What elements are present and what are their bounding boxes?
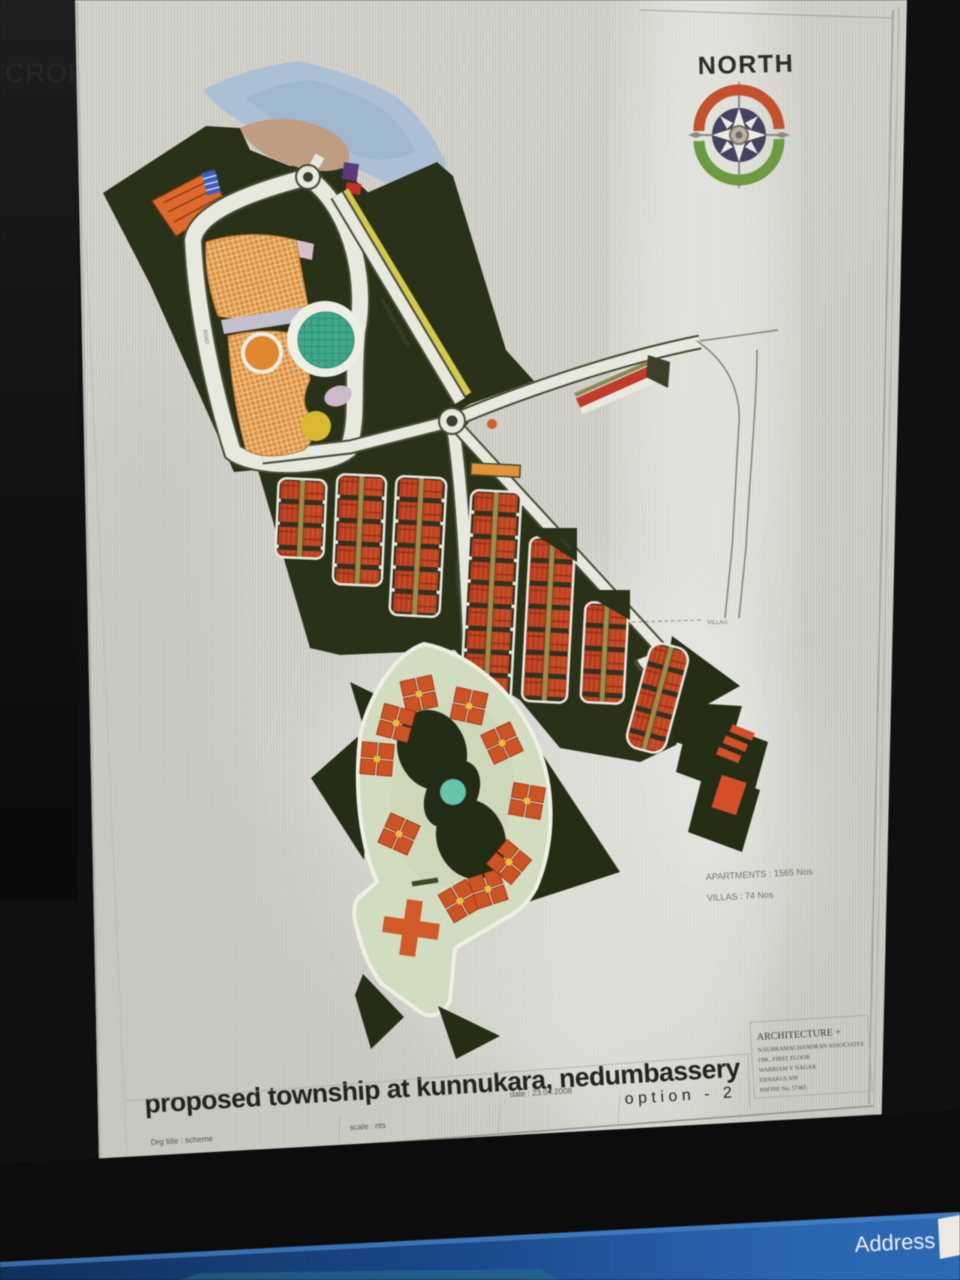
svg-text:VILLAS: VILLAS xyxy=(707,620,727,626)
svg-text:CROP: CROP xyxy=(5,58,87,88)
svg-text:Address: Address xyxy=(854,1228,936,1257)
svg-text:NORTH: NORTH xyxy=(697,50,794,81)
